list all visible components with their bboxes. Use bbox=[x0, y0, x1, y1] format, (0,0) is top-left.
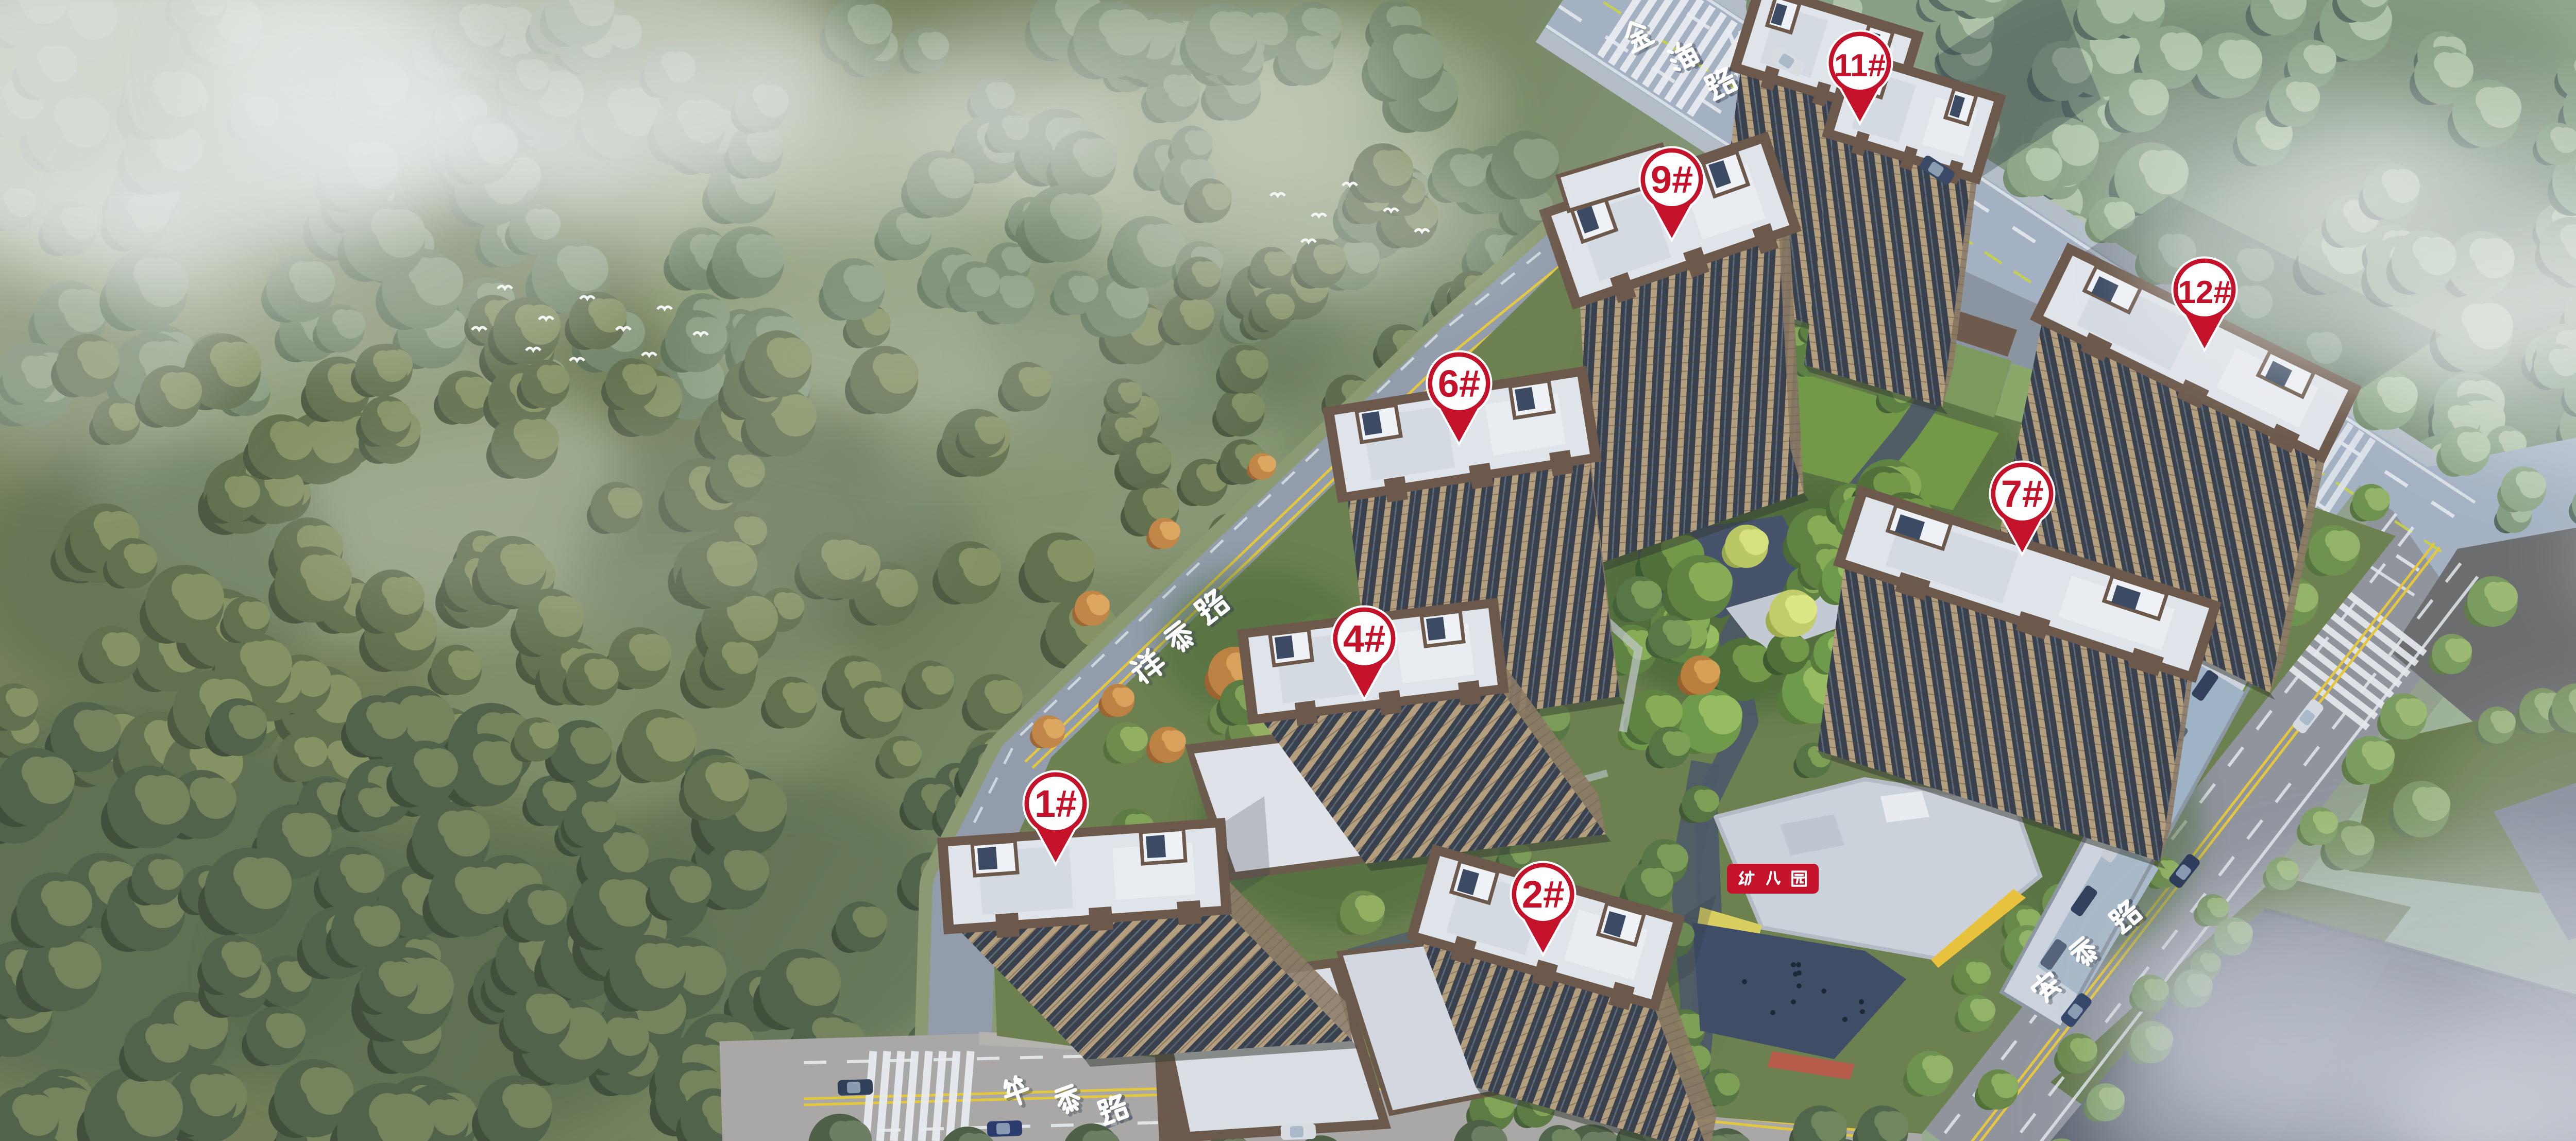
svg-text:9#: 9# bbox=[1651, 158, 1693, 201]
svg-text:12#: 12# bbox=[2178, 275, 2231, 310]
svg-text:2#: 2# bbox=[1522, 873, 1564, 916]
svg-text:1#: 1# bbox=[1035, 782, 1077, 825]
svg-text:4#: 4# bbox=[1343, 617, 1385, 660]
svg-text:7#: 7# bbox=[2001, 473, 2043, 515]
svg-text:11#: 11# bbox=[1834, 48, 1886, 83]
svg-text:6#: 6# bbox=[1438, 362, 1480, 405]
